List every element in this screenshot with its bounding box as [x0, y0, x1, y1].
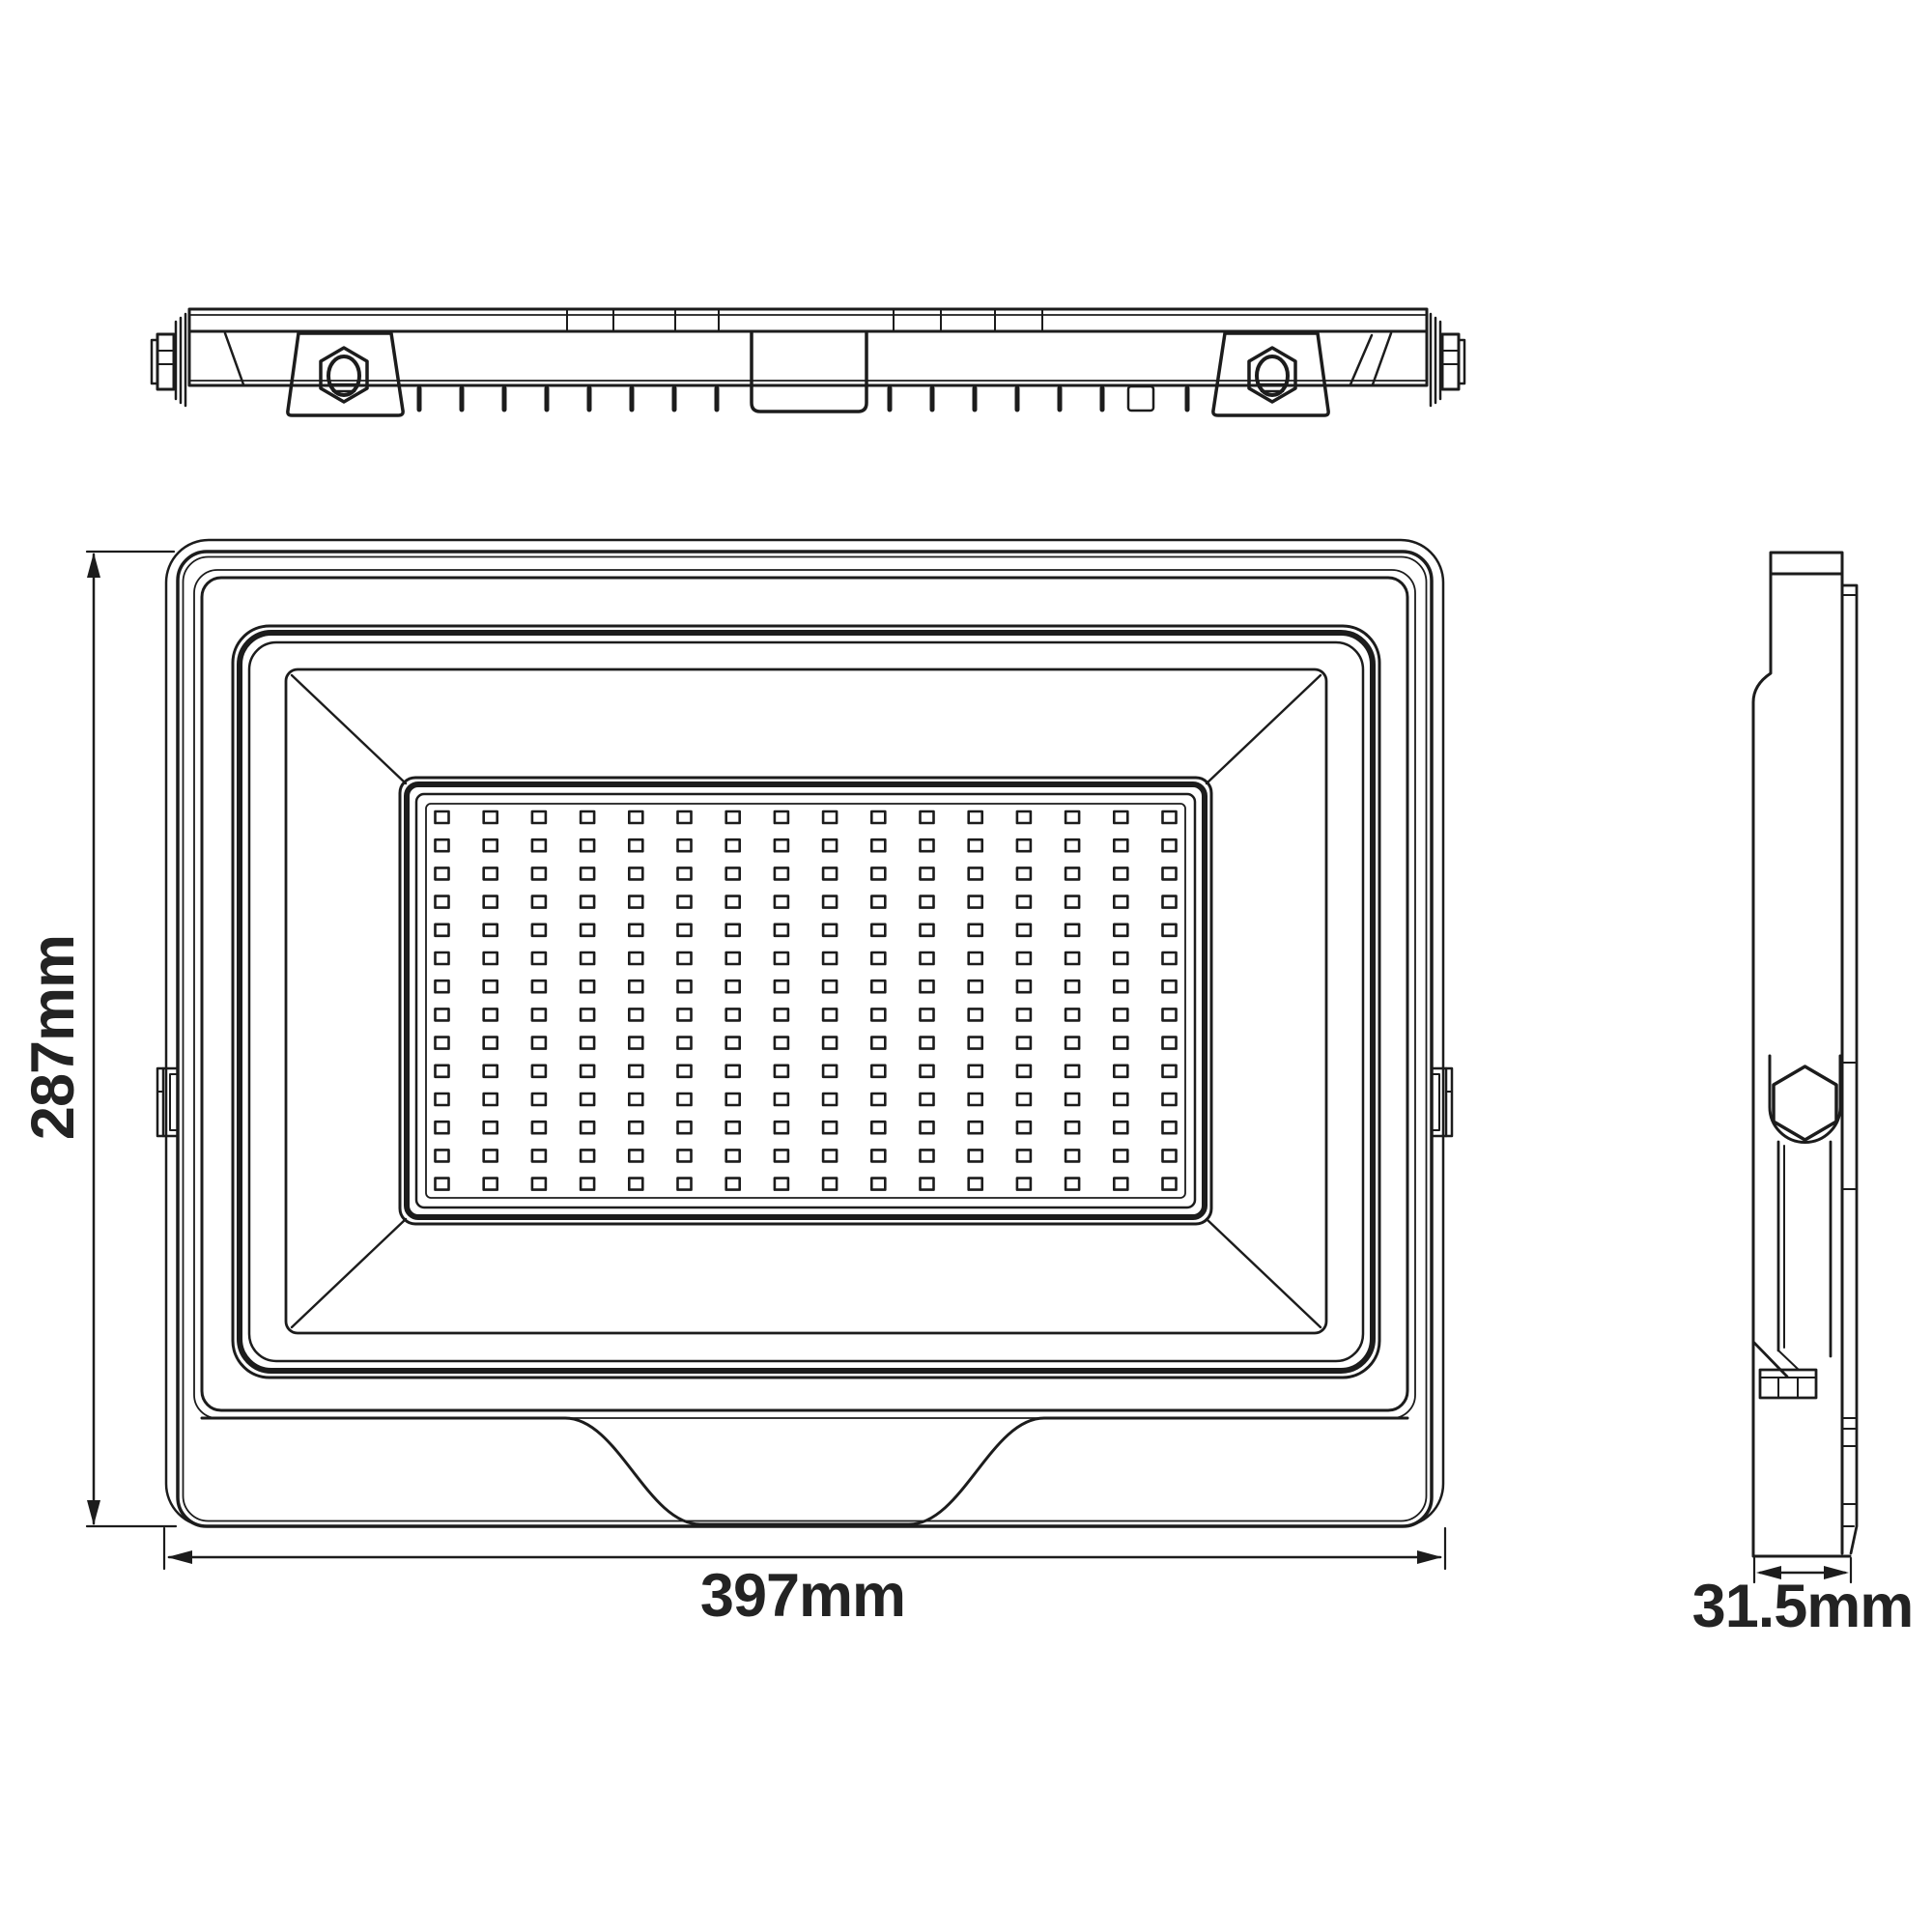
led-chip [581, 867, 594, 879]
arrowhead-up-icon [87, 553, 100, 578]
led-chip [823, 1150, 837, 1161]
led-chip [1114, 896, 1127, 908]
led-chip [871, 1122, 885, 1133]
led-chip [969, 896, 982, 908]
led-chip [484, 1150, 497, 1161]
led-chip [436, 924, 449, 936]
bracket-arm [1753, 1142, 1831, 1398]
led-chip [871, 980, 885, 992]
led-chip [871, 839, 885, 851]
led-chip [921, 839, 934, 851]
led-chip [969, 867, 982, 879]
led-chip [581, 839, 594, 851]
led-chip [532, 1037, 546, 1049]
led-chip [775, 839, 788, 851]
led-chip [484, 867, 497, 879]
led-chip [484, 1037, 497, 1049]
led-chip [581, 1094, 594, 1105]
led-chip [1017, 924, 1031, 936]
bottom-dip-contour [202, 1418, 1407, 1524]
led-chip [726, 811, 740, 823]
led-chip [678, 896, 692, 908]
led-chip [1017, 867, 1031, 879]
led-chip [678, 1009, 692, 1020]
led-chip [726, 896, 740, 908]
led-chip [1065, 811, 1079, 823]
led-chip [1017, 811, 1031, 823]
led-chip [775, 867, 788, 879]
led-chip [921, 924, 934, 936]
led-chip [581, 1150, 594, 1161]
top-body-band [189, 331, 1427, 385]
led-chip [1163, 839, 1177, 851]
led-chip [1114, 1122, 1127, 1133]
led-chip [1114, 1179, 1127, 1190]
led-chip [1017, 1179, 1031, 1190]
led-chip [1065, 952, 1079, 964]
led-chip [775, 980, 788, 992]
led-chip [823, 980, 837, 992]
led-chip [726, 980, 740, 992]
led-chip [823, 896, 837, 908]
led-chip [775, 1094, 788, 1105]
led-chip [823, 839, 837, 851]
led-chip [1065, 839, 1079, 851]
led-chip [1017, 1122, 1031, 1133]
led-chip [823, 1065, 837, 1077]
led-chip [823, 1122, 837, 1133]
arrowhead-right-icon [1417, 1550, 1442, 1564]
rear-fin-strip [1842, 585, 1857, 1553]
led-chip [532, 1094, 546, 1105]
led-chip [726, 1179, 740, 1190]
led-chip [871, 1150, 885, 1161]
led-chip [1114, 924, 1127, 936]
led-chip [1163, 980, 1177, 992]
led-chip [726, 1150, 740, 1161]
led-chip [532, 1122, 546, 1133]
led-chip [436, 867, 449, 879]
led-chip [775, 952, 788, 964]
led-chip [484, 839, 497, 851]
led-chip [678, 980, 692, 992]
led-chip [1163, 1122, 1177, 1133]
led-chip [823, 924, 837, 936]
led-chip [581, 896, 594, 908]
led-chip [871, 896, 885, 908]
led-chip [775, 1150, 788, 1161]
led-chip [775, 1009, 788, 1020]
led-chip [484, 1122, 497, 1133]
led-chip [1163, 1037, 1177, 1049]
led-chip [629, 1009, 642, 1020]
top-rail [189, 309, 1427, 331]
led-chip [1065, 980, 1079, 992]
led-chip [823, 952, 837, 964]
led-chip [532, 1009, 546, 1020]
led-chip [1163, 896, 1177, 908]
led-chip [969, 980, 982, 992]
led-chip [581, 1065, 594, 1077]
led-chip [921, 1065, 934, 1077]
side-view [1753, 553, 1857, 1556]
led-chip [629, 980, 642, 992]
led-chip [1163, 952, 1177, 964]
led-chip [678, 952, 692, 964]
led-chip [678, 1122, 692, 1133]
led-chip [581, 980, 594, 992]
reflector-bevel [286, 669, 1326, 1333]
hex-nut-icon [1774, 1066, 1836, 1140]
led-chip [678, 1065, 692, 1077]
led-chip [921, 1179, 934, 1190]
led-chip [871, 952, 885, 964]
led-chip [1163, 1179, 1177, 1190]
led-chip [775, 811, 788, 823]
led-chip [436, 1065, 449, 1077]
led-chip [436, 980, 449, 992]
led-chip [1065, 924, 1079, 936]
led-chip [871, 1094, 885, 1105]
led-chip [484, 980, 497, 992]
led-chip [775, 1037, 788, 1049]
led-chip [921, 896, 934, 908]
led-chip [678, 867, 692, 879]
led-chip [1017, 896, 1031, 908]
led-chip [532, 867, 546, 879]
led-chip [921, 1009, 934, 1020]
led-chip [726, 839, 740, 851]
led-chip [726, 1065, 740, 1077]
led-chip [581, 1122, 594, 1133]
led-chip [1114, 811, 1127, 823]
led-chip [969, 1150, 982, 1161]
dimension-depth: 31.5mm [1692, 1558, 1914, 1640]
heatsink-fins [419, 388, 1187, 410]
led-chip [823, 1179, 837, 1190]
led-chip [1114, 980, 1127, 992]
left-mount-tab [157, 1068, 178, 1136]
led-chip [823, 867, 837, 879]
left-end-cap [152, 314, 243, 406]
led-chip [629, 1037, 642, 1049]
dimension-height: 287mm [19, 552, 176, 1526]
led-chip [1163, 867, 1177, 879]
front-flange [194, 570, 1415, 1418]
led-chip [532, 839, 546, 851]
led-chip [678, 1179, 692, 1190]
led-chip [921, 1122, 934, 1133]
led-chip [436, 1179, 449, 1190]
right-nut-bracket [1213, 333, 1328, 415]
led-chip [1065, 1179, 1079, 1190]
led-chip [726, 924, 740, 936]
led-chip [921, 1037, 934, 1049]
led-chip [921, 867, 934, 879]
led-chip [1017, 1065, 1031, 1077]
led-chip [921, 980, 934, 992]
led-chip [775, 1122, 788, 1133]
led-chip [629, 896, 642, 908]
led-chip [1065, 896, 1079, 908]
led-chip [969, 924, 982, 936]
led-chip [871, 924, 885, 936]
led-chip [1065, 1094, 1079, 1105]
led-chip [678, 1094, 692, 1105]
led-chip [436, 896, 449, 908]
led-chip [921, 1094, 934, 1105]
led-chip [436, 839, 449, 851]
led-chip [823, 1094, 837, 1105]
led-chip [1163, 1009, 1177, 1020]
bracket-knob [1770, 1056, 1840, 1143]
led-chip [629, 924, 642, 936]
led-chip [629, 1122, 642, 1133]
led-chip [1065, 1037, 1079, 1049]
led-chip [969, 952, 982, 964]
led-chip [581, 1037, 594, 1049]
led-chip [581, 952, 594, 964]
led-chip [969, 1037, 982, 1049]
led-chip [629, 839, 642, 851]
led-chip [629, 1065, 642, 1077]
right-end-cap [1350, 314, 1464, 406]
led-chip [1065, 867, 1079, 879]
led-chip [484, 1179, 497, 1190]
led-chip [532, 1065, 546, 1077]
led-chip [969, 811, 982, 823]
led-chip [969, 1065, 982, 1077]
led-chip [1114, 1037, 1127, 1049]
led-chip [484, 1009, 497, 1020]
led-chip [1163, 924, 1177, 936]
led-chip [1017, 1150, 1031, 1161]
led-chip [678, 1037, 692, 1049]
led-chip [436, 1150, 449, 1161]
led-chip [969, 1179, 982, 1190]
led-chip [1017, 1009, 1031, 1020]
led-chip [532, 924, 546, 936]
led-chip [726, 1094, 740, 1105]
led-chip [484, 811, 497, 823]
led-chip [678, 839, 692, 851]
junction-box-tab [752, 333, 867, 412]
led-chip [436, 811, 449, 823]
led-chip [823, 1009, 837, 1020]
led-chip [532, 1179, 546, 1190]
led-chip [629, 867, 642, 879]
top-view [152, 309, 1464, 415]
arrowhead-down-icon [87, 1500, 100, 1525]
led-chip [436, 1094, 449, 1105]
led-chip [1114, 952, 1127, 964]
left-nut-bracket [288, 333, 403, 415]
led-chip [629, 1094, 642, 1105]
led-chip [1163, 1094, 1177, 1105]
led-chip [775, 896, 788, 908]
floodlight-dimension-drawing: 287mm 397mm 31.5mm [0, 0, 1932, 1932]
led-chip [775, 924, 788, 936]
led-chip [921, 952, 934, 964]
led-chip [484, 896, 497, 908]
led-chip [1163, 1065, 1177, 1077]
front-view [157, 540, 1452, 1526]
technical-drawing-page: 287mm 397mm 31.5mm [0, 0, 1932, 1932]
right-mount-tab [1432, 1068, 1452, 1136]
led-chip [921, 1150, 934, 1161]
led-chip [969, 839, 982, 851]
led-chip [726, 867, 740, 879]
wide-fin [1128, 386, 1153, 411]
led-chip [1017, 952, 1031, 964]
led-chip [871, 867, 885, 879]
led-chip [678, 1150, 692, 1161]
led-chip [629, 1179, 642, 1190]
arrowhead-left-icon [167, 1550, 192, 1564]
height-dimension-label: 287mm [19, 935, 87, 1140]
led-chip [532, 811, 546, 823]
led-chip [871, 1065, 885, 1077]
led-chip [629, 952, 642, 964]
width-dimension-label: 397mm [700, 1562, 905, 1630]
led-chip [532, 980, 546, 992]
led-chip [1114, 1065, 1127, 1077]
led-chip [532, 1150, 546, 1161]
led-chip [1163, 811, 1177, 823]
led-chip [581, 924, 594, 936]
led-chip [726, 952, 740, 964]
led-chip [436, 952, 449, 964]
led-chip [1065, 1009, 1079, 1020]
led-chip [1114, 1009, 1127, 1020]
led-chip [581, 811, 594, 823]
led-chip [871, 1037, 885, 1049]
led-chip [1065, 1065, 1079, 1077]
led-chip [436, 1037, 449, 1049]
led-chip [532, 896, 546, 908]
depth-dimension-label: 31.5mm [1692, 1573, 1914, 1640]
led-chip [1017, 839, 1031, 851]
led-chip [1114, 1150, 1127, 1161]
led-chip [871, 1009, 885, 1020]
led-chip [969, 1094, 982, 1105]
led-chip [1114, 839, 1127, 851]
led-chip [969, 1122, 982, 1133]
led-chip [823, 1037, 837, 1049]
led-chip [629, 1150, 642, 1161]
led-chip [484, 1065, 497, 1077]
led-chip [678, 924, 692, 936]
led-chip [1114, 1094, 1127, 1105]
side-silhouette [1753, 553, 1850, 1556]
led-chip [726, 1122, 740, 1133]
led-panel [400, 778, 1211, 1224]
led-chip [1114, 867, 1127, 879]
led-chip [1017, 1094, 1031, 1105]
led-chip [629, 811, 642, 823]
led-chip [484, 1094, 497, 1105]
led-chip [726, 1037, 740, 1049]
rail-segment-dividers [567, 310, 1042, 331]
led-chip [532, 952, 546, 964]
led-chip [678, 811, 692, 823]
led-chip [436, 1009, 449, 1020]
led-chip [1163, 1150, 1177, 1161]
led-chip [871, 811, 885, 823]
led-chip [1017, 980, 1031, 992]
led-chip [581, 1009, 594, 1020]
led-chip [484, 952, 497, 964]
led-grid [436, 811, 1177, 1190]
led-chip [921, 811, 934, 823]
led-chip [1065, 1122, 1079, 1133]
led-chip [969, 1009, 982, 1020]
led-chip [726, 1009, 740, 1020]
housing-outline [178, 552, 1432, 1526]
led-chip [823, 811, 837, 823]
led-chip [1017, 1037, 1031, 1049]
led-chip [775, 1179, 788, 1190]
led-chip [484, 924, 497, 936]
led-chip [871, 1179, 885, 1190]
led-chip [775, 1065, 788, 1077]
dimension-width: 397mm [164, 1528, 1445, 1630]
led-chip [1065, 1150, 1079, 1161]
led-chip [436, 1122, 449, 1133]
led-chip [581, 1179, 594, 1190]
